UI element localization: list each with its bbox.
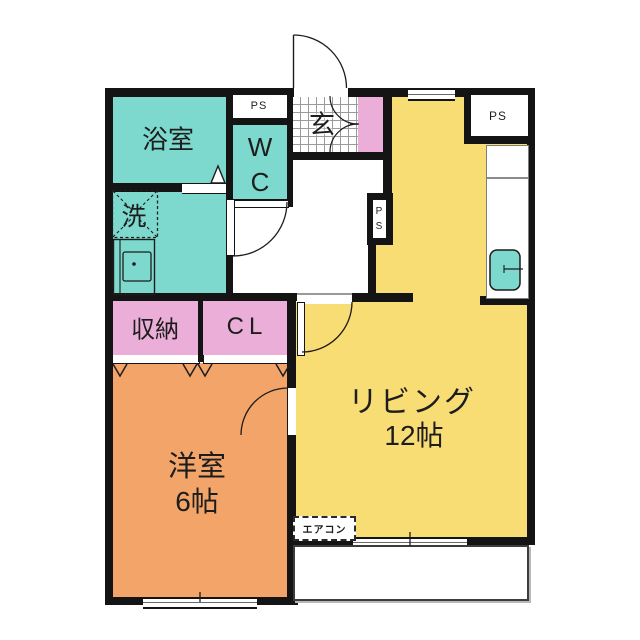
closet-fold-mark-left xyxy=(198,364,212,376)
floor-plan: エアコン xyxy=(0,0,640,640)
label-living-size: 12帖 xyxy=(384,414,443,454)
label-storage: 収納 xyxy=(131,310,179,345)
kitchen-sink xyxy=(490,250,520,290)
entrance-door-arc xyxy=(294,35,347,88)
vanity-basin xyxy=(123,252,151,281)
label-western-size: 6帖 xyxy=(175,480,219,520)
linework-layer xyxy=(0,0,640,640)
label-ps-middle: PS xyxy=(374,204,384,234)
label-ps-top-left: PS xyxy=(251,100,268,112)
closet-fold-mark-right xyxy=(276,364,290,376)
vanity-drain-dot xyxy=(132,262,136,266)
label-western: 洋室 xyxy=(168,443,226,485)
storage-fold-mark-right xyxy=(183,364,197,376)
bath-door-triangle xyxy=(211,166,225,183)
storage-fold-mark-left xyxy=(113,364,127,376)
living-door-arc xyxy=(302,302,352,352)
label-wc: WC xyxy=(245,130,275,200)
western-door-arc xyxy=(241,388,288,435)
label-genkan: 玄 xyxy=(309,105,335,142)
wc-door-arc xyxy=(233,202,287,256)
label-laundry: 洗 xyxy=(121,197,146,233)
label-bath: 浴室 xyxy=(142,120,194,157)
label-closet: CL xyxy=(227,313,268,341)
label-ps-top-right: PS xyxy=(489,109,507,123)
